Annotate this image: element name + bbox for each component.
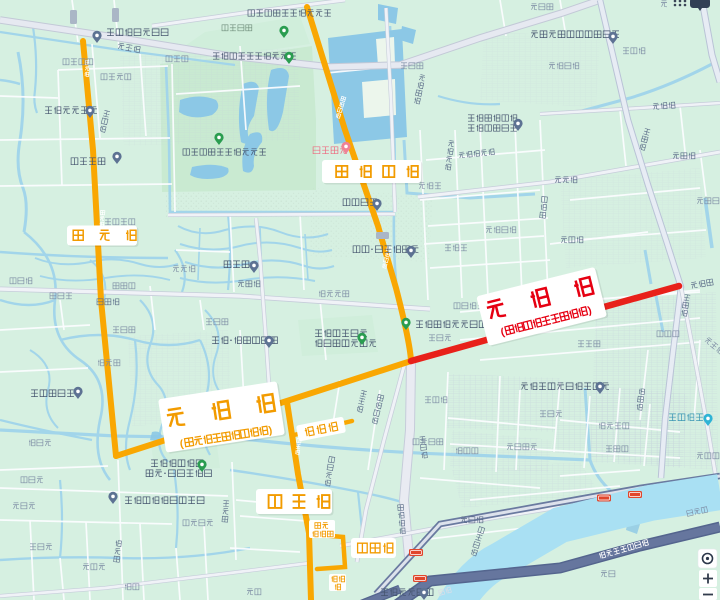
svg-text:·: · bbox=[164, 469, 167, 479]
svg-text:·: · bbox=[371, 245, 374, 255]
svg-text:·: · bbox=[230, 336, 233, 346]
